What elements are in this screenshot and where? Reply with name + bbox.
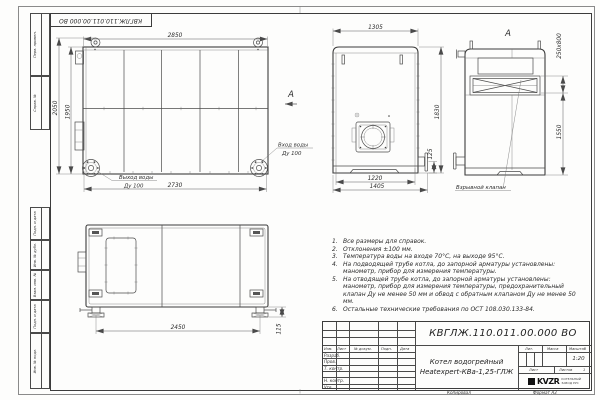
note-text: Температура воды на входе 70°С, на выход… xyxy=(343,253,580,261)
col-dokum: № докум. xyxy=(354,347,372,351)
row-prov: Пров. xyxy=(324,359,336,364)
explosion-valve-label: Взрывной клапан xyxy=(456,185,506,191)
masshtab-label: Масштаб xyxy=(569,347,586,351)
lifting-lug xyxy=(91,38,100,47)
note-item: 4. На подводящей трубе котла, до запорно… xyxy=(330,261,580,276)
row-tkontr: Т. контр. xyxy=(324,366,343,371)
drawing-sheet: Перв. примен. Справ. № Подп. и дата Инв.… xyxy=(0,0,600,400)
outlet-label: Выход воды xyxy=(119,175,154,181)
dim-side-width: 1305 xyxy=(368,25,383,31)
technical-notes: 1. Все размеры для справок. 2. Отклонени… xyxy=(330,238,580,313)
rear-view: А xyxy=(454,29,569,191)
massa-label: Масса xyxy=(547,347,558,351)
note-text: На отводящей трубе котла, до запорной ар… xyxy=(343,276,580,306)
col-data: Дата xyxy=(400,347,409,351)
title-block: Изм. Лист № докум. Подп. Дата Разраб. Пр… xyxy=(322,321,590,389)
dim-side-stub: 125 xyxy=(428,148,434,159)
note-text: Все размеры для справок. xyxy=(343,238,580,246)
col-izm: Изм. xyxy=(324,347,332,351)
note-text: Отклонения ±100 мм. xyxy=(343,246,580,254)
note-text: Остальные технические требования по ОСТ … xyxy=(343,306,580,314)
dim-plan-foot: 115 xyxy=(277,323,283,334)
access-door xyxy=(105,237,138,295)
listov-value: 1 xyxy=(583,368,585,372)
rear-view-label: А xyxy=(504,29,511,39)
copied-label: Копировал xyxy=(447,390,471,395)
dim-rear-valve: 250x800 xyxy=(557,33,563,59)
dim-side-bottom-inner: 1220 xyxy=(368,176,383,182)
lit-label: Лит. xyxy=(525,347,533,351)
dim-rear-height: 1550 xyxy=(557,124,563,139)
product-name: Котел водогрейный Heatexpert-КВа-1,25-ГЛ… xyxy=(415,345,518,390)
dim-front-width-bottom: 2730 xyxy=(168,183,183,189)
logo-text: KVZR xyxy=(537,377,559,386)
note-item: 5. На отводящей трубе котла, до запорной… xyxy=(330,276,580,306)
list-label: Лист xyxy=(529,368,538,372)
note-number: 2. xyxy=(330,246,343,254)
note-text: На подводящей трубе котла, до запорной а… xyxy=(343,261,580,276)
company-logo: KVZR КОТЕЛЬНЫЙ ЗАВОД РУС xyxy=(518,373,591,390)
note-number: 3. xyxy=(330,253,343,261)
listov-label: Листов xyxy=(559,368,572,372)
dim-front-width: 2850 xyxy=(168,33,183,39)
note-number: 1. xyxy=(330,238,343,246)
scale-value: 1:20 xyxy=(566,352,591,366)
view-a-arrow-label: А xyxy=(287,90,294,100)
front-view: 2850 2050 1950 2730 Выход воды Ду 100 Вх… xyxy=(53,33,313,192)
note-number: 6. xyxy=(330,306,343,314)
note-item: 1. Все размеры для справок. xyxy=(330,238,580,246)
col-podp: Подп. xyxy=(381,347,392,351)
burner-hatch xyxy=(352,122,394,152)
note-item: 2. Отклонения ±100 мм. xyxy=(330,246,580,254)
dim-front-height-body: 1950 xyxy=(65,104,71,119)
row-razrab: Разраб. xyxy=(324,353,340,358)
note-item: 6. Остальные технические требования по О… xyxy=(330,306,580,314)
lifting-lug xyxy=(254,38,263,47)
dim-side-height: 1830 xyxy=(435,104,441,119)
row-utv: Утв. xyxy=(324,385,333,390)
inlet-dn-label: Ду 100 xyxy=(281,151,302,157)
note-item: 3. Температура воды на входе 70°С, на вы… xyxy=(330,253,580,261)
support-feet xyxy=(80,307,276,317)
explosion-valve xyxy=(470,76,540,95)
bottom-view: 2450 115 xyxy=(78,225,286,335)
note-number: 5. xyxy=(330,276,343,306)
product-name-line2: Heatexpert-КВа-1,25-ГЛЖ xyxy=(420,368,513,378)
row-nkontr: Н. контр. xyxy=(324,378,344,383)
outlet-dn-label: Ду 100 xyxy=(123,184,144,190)
corner-pad xyxy=(89,229,263,297)
inlet-label: Вход воды xyxy=(278,143,309,149)
logo-square-icon xyxy=(528,378,535,385)
col-list: Лист xyxy=(337,347,346,351)
note-number: 4. xyxy=(330,261,343,276)
side-view: 1305 1830 125 1220 1405 xyxy=(332,25,445,193)
product-name-line1: Котел водогрейный xyxy=(430,358,504,368)
dim-front-height-outer: 2050 xyxy=(53,100,59,115)
dim-side-bottom-outer: 1405 xyxy=(370,184,385,190)
title-doc-number: КВГЛЖ.110.011.00.000 ВО xyxy=(415,322,591,345)
company-name: КОТЕЛЬНЫЙ ЗАВОД РУС xyxy=(561,378,581,385)
dim-plan-length: 2450 xyxy=(171,325,186,331)
format-label: Формат А3 xyxy=(533,390,557,395)
